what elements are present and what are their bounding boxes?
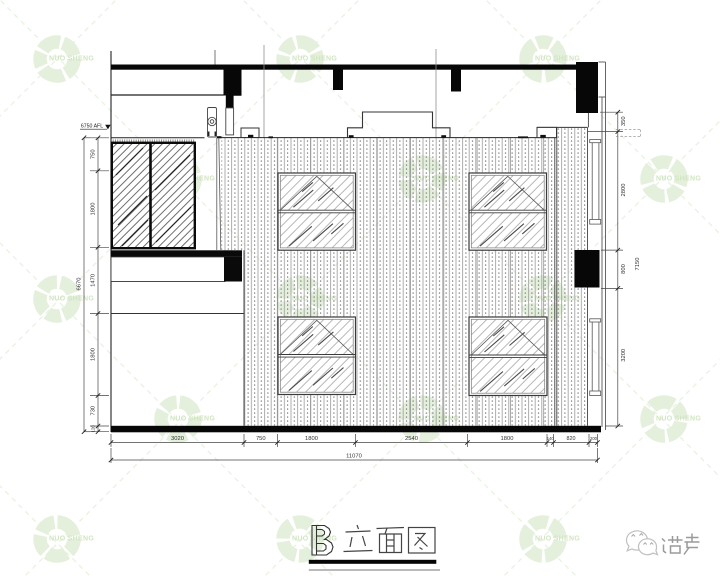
svg-text:820: 820 <box>567 436 576 442</box>
svg-text:6670: 6670 <box>77 278 83 291</box>
svg-text:NUO SHENG: NUO SHENG <box>656 176 701 183</box>
svg-text:2800: 2800 <box>621 184 627 197</box>
svg-text:800: 800 <box>621 264 627 274</box>
svg-text:NUO SHENG: NUO SHENG <box>49 296 94 303</box>
svg-text:NUO SHENG: NUO SHENG <box>49 536 94 543</box>
svg-text:750: 750 <box>256 436 266 442</box>
svg-text:NUO SHENG: NUO SHENG <box>170 416 215 423</box>
svg-text:1470: 1470 <box>91 274 97 287</box>
svg-text:750: 750 <box>91 149 97 159</box>
svg-text:1800: 1800 <box>501 436 514 442</box>
svg-text:NUO SHENG: NUO SHENG <box>49 56 94 63</box>
svg-text:7150: 7150 <box>635 258 641 271</box>
svg-text:11070: 11070 <box>346 454 362 460</box>
svg-text:3020: 3020 <box>171 436 184 442</box>
svg-text:140: 140 <box>547 436 555 441</box>
svg-text:2540: 2540 <box>405 436 418 442</box>
svg-text:NUO SHENG: NUO SHENG <box>292 56 337 63</box>
svg-text:200: 200 <box>590 436 598 441</box>
svg-text:350: 350 <box>621 116 627 126</box>
svg-text:NUO SHENG: NUO SHENG <box>535 56 580 63</box>
svg-text:NUO SHENG: NUO SHENG <box>656 416 701 423</box>
svg-text:NUO SHENG: NUO SHENG <box>535 536 580 543</box>
svg-text:1800: 1800 <box>91 348 97 361</box>
svg-text:1800: 1800 <box>91 203 97 216</box>
svg-text:1800: 1800 <box>305 436 318 442</box>
svg-text:NUO SHENG: NUO SHENG <box>292 536 337 543</box>
svg-text:6750 AFL: 6750 AFL <box>81 124 103 130</box>
svg-text:120: 120 <box>91 425 96 433</box>
svg-text:3200: 3200 <box>621 349 627 362</box>
svg-text:730: 730 <box>91 406 97 416</box>
